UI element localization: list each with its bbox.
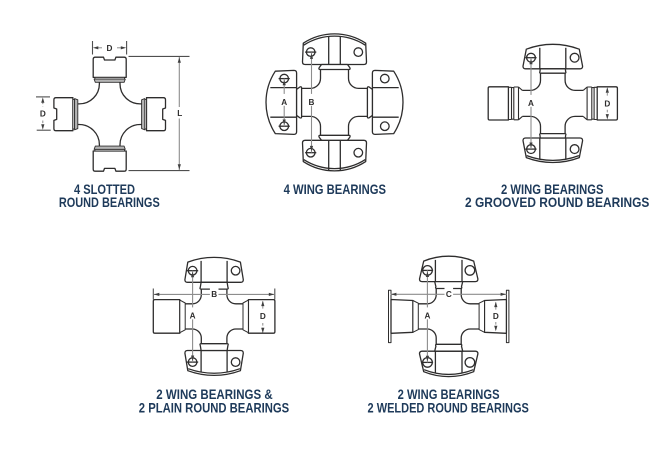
svg-text:A: A (190, 311, 196, 320)
svg-text:D: D (40, 110, 46, 119)
svg-text:B: B (309, 98, 315, 107)
svg-text:A: A (281, 98, 287, 107)
svg-text:C: C (446, 290, 452, 299)
svg-text:4 WING BEARINGS: 4 WING BEARINGS (284, 181, 386, 197)
svg-text:D: D (260, 312, 266, 321)
svg-text:A: A (424, 311, 430, 320)
svg-text:2 GROOVED ROUND BEARINGS: 2 GROOVED ROUND BEARINGS (465, 194, 649, 210)
svg-text:2 WELDED ROUND BEARINGS: 2 WELDED ROUND BEARINGS (368, 400, 529, 416)
svg-text:2 PLAIN ROUND BEARINGS: 2 PLAIN ROUND BEARINGS (139, 400, 289, 416)
svg-text:D: D (107, 44, 113, 53)
svg-text:B: B (211, 290, 217, 299)
svg-text:ROUND BEARINGS: ROUND BEARINGS (59, 194, 160, 210)
svg-text:D: D (493, 312, 499, 321)
svg-text:D: D (604, 100, 610, 109)
svg-text:A: A (528, 99, 534, 108)
svg-text:L: L (177, 109, 182, 118)
